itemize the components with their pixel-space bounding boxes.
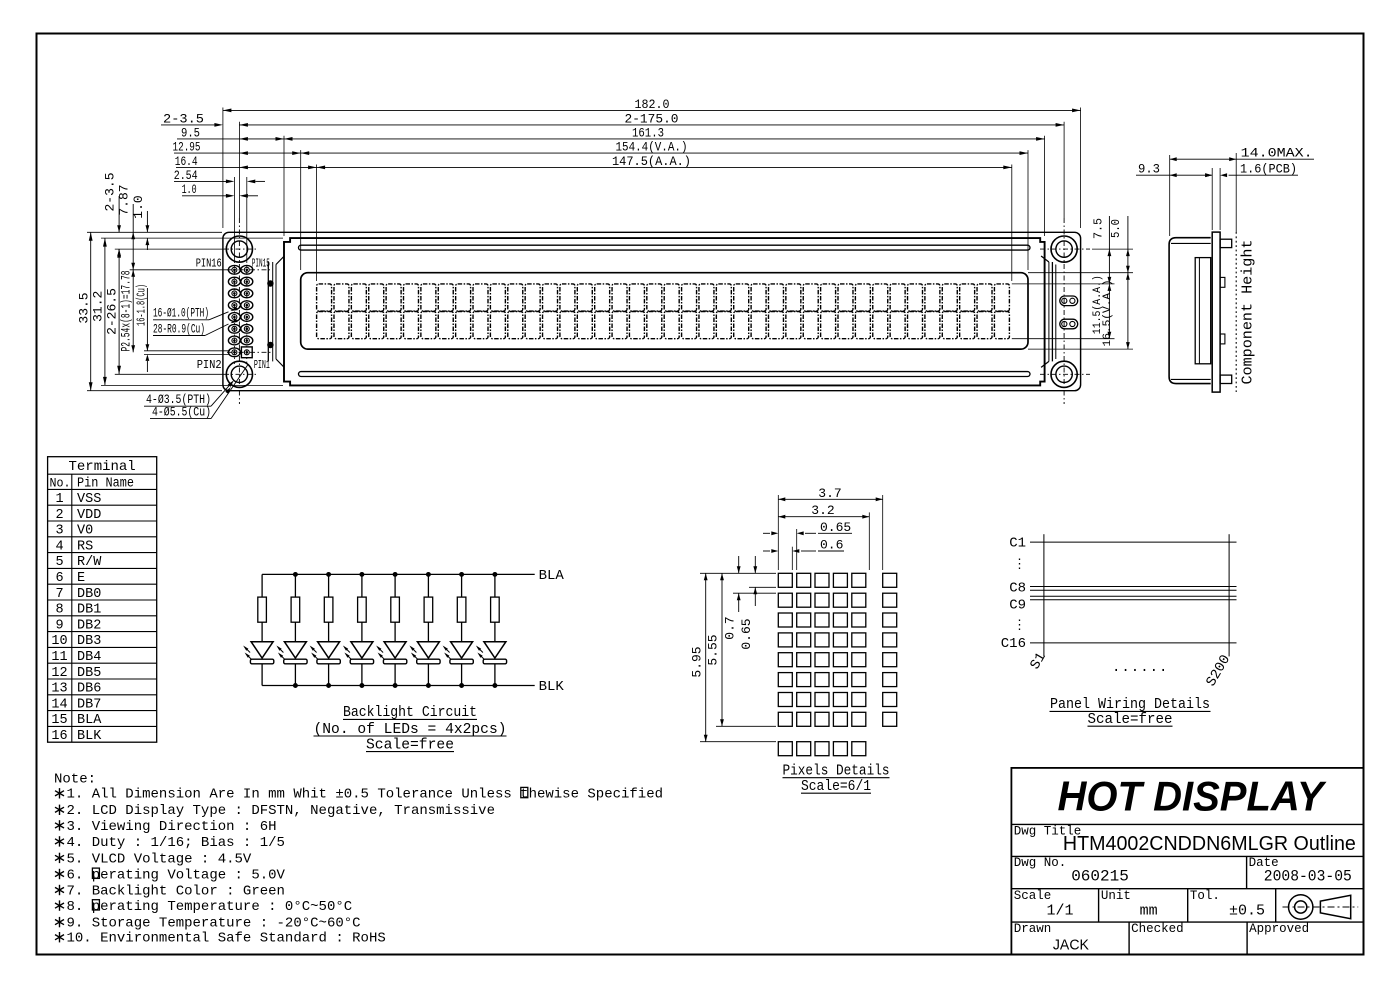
svg-text:Terminal: Terminal xyxy=(68,459,135,475)
svg-text:9.5: 9.5 xyxy=(181,125,200,140)
svg-text:DB7: DB7 xyxy=(77,697,101,712)
svg-text:16.5(V.A.): 16.5(V.A.) xyxy=(1102,280,1114,347)
svg-text:1.0: 1.0 xyxy=(182,182,197,197)
svg-text:PIN16: PIN16 xyxy=(196,257,222,271)
svg-text:8. perating Temperature : 0°C: 8. perating Temperature : 0°C~50°C xyxy=(67,899,353,915)
svg-text:C9: C9 xyxy=(1009,598,1026,614)
svg-text:16-1.8(Cu): 16-1.8(Cu) xyxy=(135,284,149,326)
svg-text:BLA: BLA xyxy=(77,713,102,728)
svg-text:PIN15: PIN15 xyxy=(252,257,270,271)
svg-text:9: 9 xyxy=(55,618,63,633)
svg-text:4: 4 xyxy=(55,539,63,554)
svg-text:1. All Dimension Are In mm Whi: 1. All Dimension Are In mm Whit ±0.5 Tol… xyxy=(67,787,664,803)
svg-text:DB4: DB4 xyxy=(77,650,101,665)
svg-text:5. VLCD Voltage : 4.5V: 5. VLCD Voltage : 4.5V xyxy=(67,851,252,867)
svg-text:3.7: 3.7 xyxy=(818,486,841,501)
svg-text:BLK: BLK xyxy=(539,679,565,695)
svg-text:2-26.5: 2-26.5 xyxy=(105,288,120,335)
svg-text:DB3: DB3 xyxy=(77,634,101,649)
svg-text:0.7: 0.7 xyxy=(722,616,737,639)
svg-text:VSS: VSS xyxy=(77,492,101,507)
svg-text:12.95: 12.95 xyxy=(173,140,201,155)
svg-text:31.2: 31.2 xyxy=(91,291,106,322)
svg-text:5.95: 5.95 xyxy=(689,646,704,677)
svg-text:DB2: DB2 xyxy=(77,618,101,633)
svg-text:Checked: Checked xyxy=(1131,922,1184,936)
svg-text:Dwg No.: Dwg No. xyxy=(1014,856,1067,870)
svg-text:VDD: VDD xyxy=(77,508,101,523)
svg-text:C1: C1 xyxy=(1009,535,1026,551)
svg-text:PIN1: PIN1 xyxy=(254,358,270,372)
svg-text:10: 10 xyxy=(51,634,67,649)
svg-text:7.5: 7.5 xyxy=(1092,218,1105,239)
svg-text:DB0: DB0 xyxy=(77,587,101,602)
svg-text:C16: C16 xyxy=(1001,636,1026,652)
svg-text:P2.54x(8-1)=17.78: P2.54x(8-1)=17.78 xyxy=(120,271,134,352)
svg-text:0.6: 0.6 xyxy=(820,538,843,553)
svg-text:DB1: DB1 xyxy=(77,603,101,618)
svg-text:16: 16 xyxy=(51,729,67,744)
svg-text:mm: mm xyxy=(1140,903,1158,920)
svg-text:⋮: ⋮ xyxy=(1013,618,1026,633)
svg-text:13: 13 xyxy=(51,682,67,697)
svg-text:BLA: BLA xyxy=(539,568,565,584)
svg-text:RS: RS xyxy=(77,539,93,554)
svg-text:5.55: 5.55 xyxy=(706,634,721,665)
svg-text:2008-03-05: 2008-03-05 xyxy=(1264,868,1352,886)
svg-text:16-Ø1.0(PTH): 16-Ø1.0(PTH) xyxy=(153,307,209,321)
svg-text:4-Ø5.5(Cu): 4-Ø5.5(Cu) xyxy=(152,405,211,419)
svg-text:C8: C8 xyxy=(1009,581,1026,597)
svg-text:16.4: 16.4 xyxy=(175,154,198,169)
svg-text:0.65: 0.65 xyxy=(739,618,754,649)
svg-text:2-3.5: 2-3.5 xyxy=(163,111,204,126)
svg-text:060215: 060215 xyxy=(1071,868,1129,886)
svg-text:Pin Name: Pin Name xyxy=(77,476,134,491)
svg-text:5.0: 5.0 xyxy=(1110,219,1123,238)
svg-text:3.2: 3.2 xyxy=(811,503,834,518)
svg-text:15: 15 xyxy=(51,713,67,728)
svg-text:0.65: 0.65 xyxy=(820,520,851,535)
svg-text:147.5(A.A.): 147.5(A.A.) xyxy=(612,154,691,169)
svg-text:2.54: 2.54 xyxy=(174,168,198,183)
svg-text:3. Viewing Direction : 6H: 3. Viewing Direction : 6H xyxy=(67,819,277,835)
svg-text:Scale=free: Scale=free xyxy=(366,736,454,753)
svg-text:No.: No. xyxy=(50,475,71,490)
svg-text:11: 11 xyxy=(51,650,67,665)
svg-text:Scale: Scale xyxy=(1014,889,1052,903)
svg-text:154.4(V.A.): 154.4(V.A.) xyxy=(616,140,688,155)
svg-text:R/W: R/W xyxy=(77,555,102,570)
svg-text:7: 7 xyxy=(55,587,63,602)
svg-text:Component Height: Component Height xyxy=(1240,240,1257,385)
svg-text:Note:: Note: xyxy=(54,772,96,788)
svg-text:±0.5: ±0.5 xyxy=(1229,903,1265,920)
svg-text:2: 2 xyxy=(55,508,63,523)
svg-text:2. LCD Display Type : DFSTN, N: 2. LCD Display Type : DFSTN, Negative, T… xyxy=(67,803,495,819)
svg-text:HOT DISPLAY: HOT DISPLAY xyxy=(1058,773,1328,820)
svg-text:......: ...... xyxy=(1112,660,1168,676)
svg-text:Backlight Circuit: Backlight Circuit xyxy=(343,704,477,721)
svg-text:1.0: 1.0 xyxy=(131,195,146,218)
svg-text:9. Storage Temperature : -20°C: 9. Storage Temperature : -20°C~60°C xyxy=(67,916,361,932)
svg-text:14.0MAX.: 14.0MAX. xyxy=(1241,146,1313,161)
svg-text:7. Backlight Color : Green: 7. Backlight Color : Green xyxy=(67,883,285,899)
svg-text:E: E xyxy=(77,571,85,586)
svg-text:33.5: 33.5 xyxy=(77,292,92,323)
svg-text:DB5: DB5 xyxy=(77,666,101,681)
svg-text:1.6(PCB): 1.6(PCB) xyxy=(1240,162,1297,177)
svg-text:Pixels Details: Pixels Details xyxy=(783,763,890,780)
svg-text:2-175.0: 2-175.0 xyxy=(625,111,679,126)
svg-text:8: 8 xyxy=(55,603,63,618)
svg-text:Scale=free: Scale=free xyxy=(1088,711,1173,728)
svg-text:Drawn: Drawn xyxy=(1014,922,1052,936)
svg-text:28-R0.9(Cu): 28-R0.9(Cu) xyxy=(153,322,205,336)
svg-text:PIN2: PIN2 xyxy=(197,358,222,372)
svg-text:3: 3 xyxy=(55,524,63,539)
svg-text:161.3: 161.3 xyxy=(632,125,664,140)
svg-text:⋮: ⋮ xyxy=(1013,557,1026,572)
svg-text:Tol.: Tol. xyxy=(1190,889,1220,903)
svg-text:4. Duty : 1/16; Bias : 1/5: 4. Duty : 1/16; Bias : 1/5 xyxy=(67,835,285,851)
svg-text:2-3.5: 2-3.5 xyxy=(103,172,118,211)
svg-text:9.3: 9.3 xyxy=(1138,162,1160,177)
svg-text:1/1: 1/1 xyxy=(1046,903,1073,920)
svg-text:6: 6 xyxy=(55,571,63,586)
svg-text:V0: V0 xyxy=(77,524,93,539)
svg-text:Scale=6/1: Scale=6/1 xyxy=(801,778,871,795)
svg-text:5: 5 xyxy=(55,555,63,570)
svg-text:10. Environmental Safe Standar: 10. Environmental Safe Standard : RoHS xyxy=(67,931,386,947)
svg-text:Unit: Unit xyxy=(1101,889,1131,903)
svg-text:HTM4002CNDDN6MLGR Outline: HTM4002CNDDN6MLGR Outline xyxy=(1063,833,1356,855)
svg-text:1: 1 xyxy=(55,492,63,507)
svg-text:(No. of LEDs = 4x2pcs): (No. of LEDs = 4x2pcs) xyxy=(314,721,507,738)
svg-text:12: 12 xyxy=(51,666,67,681)
svg-text:14: 14 xyxy=(51,697,67,712)
svg-text:Approved: Approved xyxy=(1249,922,1309,936)
svg-text:BLK: BLK xyxy=(77,729,102,744)
svg-text:DB6: DB6 xyxy=(77,682,101,697)
svg-text:7.87: 7.87 xyxy=(117,184,132,215)
svg-text:JACK: JACK xyxy=(1053,937,1089,954)
svg-text:182.0: 182.0 xyxy=(635,97,670,112)
